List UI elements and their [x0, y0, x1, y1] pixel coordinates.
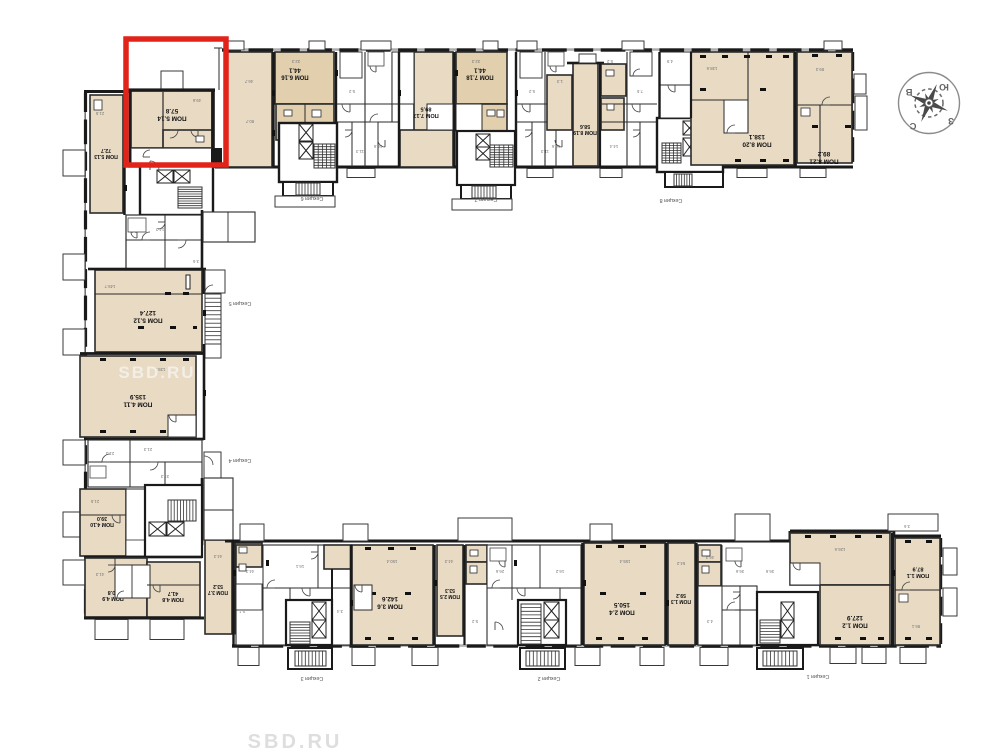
- svg-text:Секция 4: Секция 4: [229, 457, 252, 463]
- svg-text:3.6: 3.6: [192, 259, 199, 264]
- svg-text:Секция 1: Секция 1: [807, 673, 830, 679]
- svg-text:138.6: 138.6: [706, 66, 717, 71]
- svg-text:4.9: 4.9: [666, 59, 673, 64]
- svg-text:32.3: 32.3: [471, 59, 480, 64]
- svg-text:155.4: 155.4: [619, 559, 630, 564]
- svg-text:89.3: 89.3: [815, 67, 824, 72]
- svg-text:44.3: 44.3: [245, 569, 254, 574]
- svg-text:Ю: Ю: [939, 81, 949, 92]
- svg-text:126.6: 126.6: [834, 547, 845, 552]
- svg-text:36.6: 36.6: [765, 569, 774, 574]
- svg-text:41.3: 41.3: [95, 572, 104, 577]
- svg-text:16.1: 16.1: [295, 564, 304, 569]
- svg-text:80.7: 80.7: [245, 119, 254, 124]
- svg-text:32.3: 32.3: [291, 59, 300, 64]
- svg-text:5.2: 5.2: [471, 619, 478, 624]
- svg-text:21.5: 21.5: [95, 111, 104, 116]
- svg-text:7.5: 7.5: [636, 89, 643, 94]
- svg-text:Секция 3: Секция 3: [301, 675, 324, 681]
- svg-text:16.2: 16.2: [555, 569, 564, 574]
- svg-text:21.3: 21.3: [105, 451, 114, 456]
- svg-text:В: В: [905, 86, 912, 97]
- svg-text:44.3: 44.3: [213, 554, 222, 559]
- svg-text:150.4: 150.4: [386, 559, 397, 564]
- svg-text:4.3: 4.3: [706, 619, 713, 624]
- svg-text:86.1: 86.1: [911, 624, 920, 629]
- svg-text:Секция 2: Секция 2: [538, 675, 561, 681]
- svg-text:Секция 5: Секция 5: [229, 300, 252, 306]
- svg-text:149.7: 149.7: [104, 284, 115, 289]
- svg-text:1.3: 1.3: [556, 79, 563, 84]
- svg-text:Секция 6: Секция 6: [301, 195, 324, 201]
- svg-text:5.2: 5.2: [528, 89, 535, 94]
- svg-text:5.1: 5.1: [238, 609, 245, 614]
- svg-text:SBD.RU: SBD.RU: [248, 731, 343, 750]
- svg-text:21.5: 21.5: [90, 499, 99, 504]
- svg-text:44.3: 44.3: [444, 559, 453, 564]
- svg-text:3.6: 3.6: [903, 524, 910, 529]
- svg-text:SBD.RU: SBD.RU: [118, 363, 195, 382]
- svg-text:16.6: 16.6: [551, 144, 560, 149]
- svg-text:21.3: 21.3: [143, 447, 152, 452]
- svg-text:49.6: 49.6: [192, 98, 201, 103]
- svg-text:Секция 8: Секция 8: [660, 197, 683, 203]
- svg-text:31.3: 31.3: [160, 474, 169, 479]
- svg-text:54.2: 54.2: [676, 561, 685, 566]
- svg-text:14.4: 14.4: [609, 144, 618, 149]
- svg-text:11.3: 11.3: [355, 149, 364, 154]
- svg-text:Секция 7: Секция 7: [475, 196, 498, 202]
- svg-text:46.7: 46.7: [244, 79, 253, 84]
- svg-text:14.2: 14.2: [155, 227, 164, 232]
- svg-text:36.6: 36.6: [735, 569, 744, 574]
- svg-text:3.4: 3.4: [336, 609, 343, 614]
- svg-text:5.2: 5.2: [606, 59, 613, 64]
- svg-text:С: С: [909, 120, 916, 131]
- svg-text:5.2: 5.2: [348, 89, 355, 94]
- svg-text:26.6: 26.6: [495, 569, 504, 574]
- svg-text:З: З: [948, 115, 954, 126]
